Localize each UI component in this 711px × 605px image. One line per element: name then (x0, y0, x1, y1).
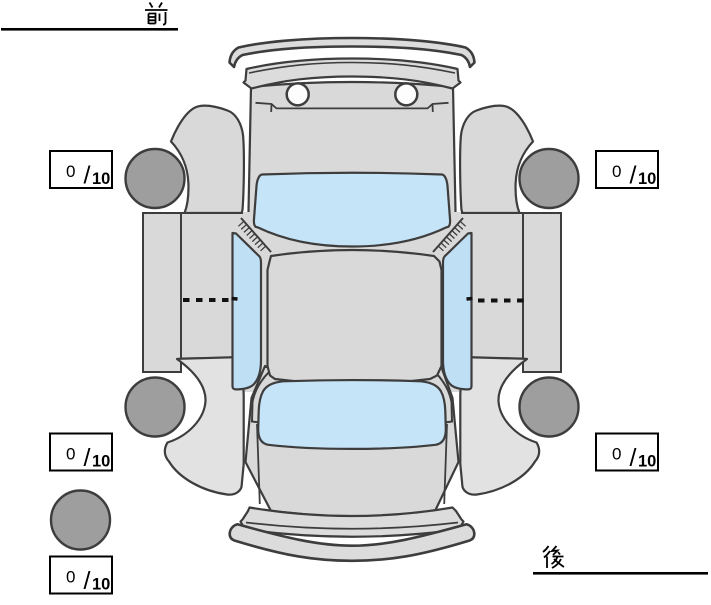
svg-text:/: / (630, 444, 637, 472)
svg-text:10: 10 (638, 453, 656, 471)
svg-text:0: 0 (612, 445, 621, 464)
svg-text:0: 0 (612, 162, 621, 181)
svg-text:0: 0 (66, 162, 75, 181)
svg-text:/: / (84, 444, 91, 472)
svg-text:10: 10 (92, 170, 110, 188)
svg-text:10: 10 (638, 170, 656, 188)
svg-text:10: 10 (92, 453, 110, 471)
svg-text:10: 10 (92, 576, 110, 594)
svg-text:0: 0 (66, 568, 75, 587)
svg-text:/: / (84, 162, 91, 190)
svg-text:/: / (630, 162, 637, 190)
svg-text:0: 0 (66, 445, 75, 464)
svg-text:/: / (84, 567, 91, 595)
